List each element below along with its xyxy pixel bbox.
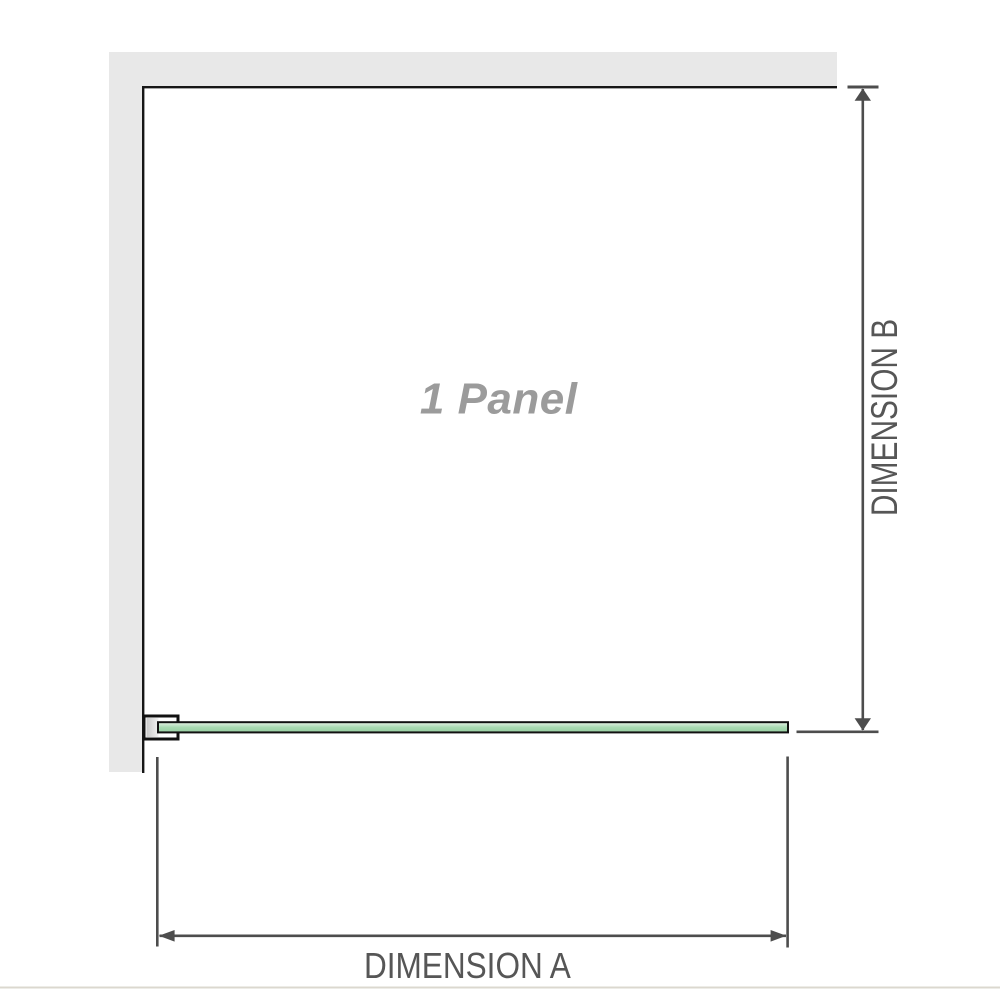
svg-text:DIMENSION A: DIMENSION A: [364, 946, 571, 986]
svg-text:DIMENSION B: DIMENSION B: [865, 319, 906, 516]
svg-text:1 Panel: 1 Panel: [420, 375, 578, 424]
